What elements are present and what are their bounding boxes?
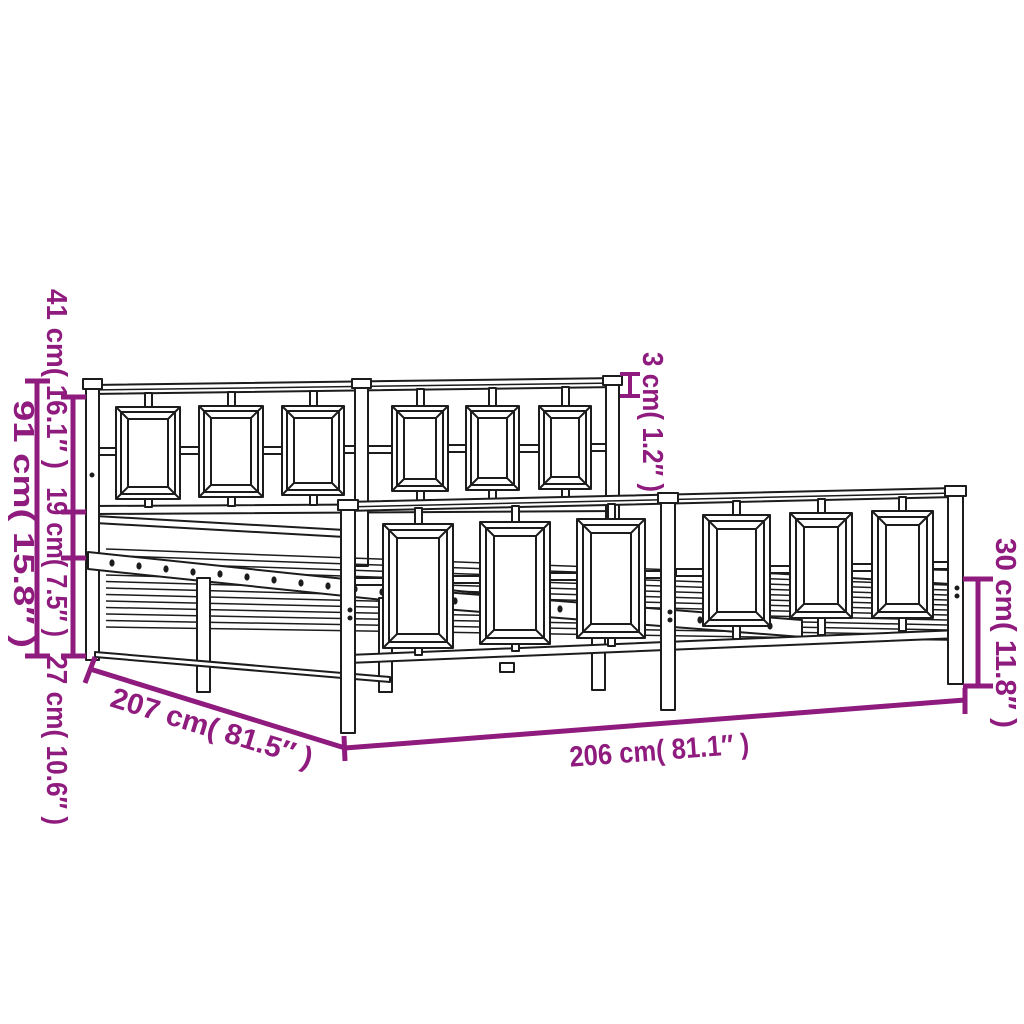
dimension-headboard-upper-height-label: 41 cm( 16.1″ ) (40, 289, 72, 469)
bed-frame-dimension-diagram: 91 cm( 15.8″ ) 41 cm( 16.1″ ) 19 cm( 7.5… (0, 0, 1024, 1024)
dimension-total-height-label: 91 cm( 15.8″ ) (7, 400, 39, 648)
dimension-inner-length-label: 206 cm( 81.1″ ) (568, 728, 750, 773)
dimension-footboard-height-label: 30 cm( 11.8″ ) (989, 538, 1021, 728)
dimension-segmented-heights-label: 41 cm( 16.1″ ) 19 cm( 7.5″ ) 27 cm( 10.6… (40, 289, 72, 825)
dimension-line-footboard-height (963, 579, 993, 686)
dimension-frame-mid-height-label: 19 cm( 7.5″ ) (40, 487, 72, 637)
dimension-base-clearance-label: 27 cm( 10.6″ ) (40, 655, 72, 825)
dimension-tube-thickness-label: 3 cm( 1.2″ ) (636, 352, 668, 492)
